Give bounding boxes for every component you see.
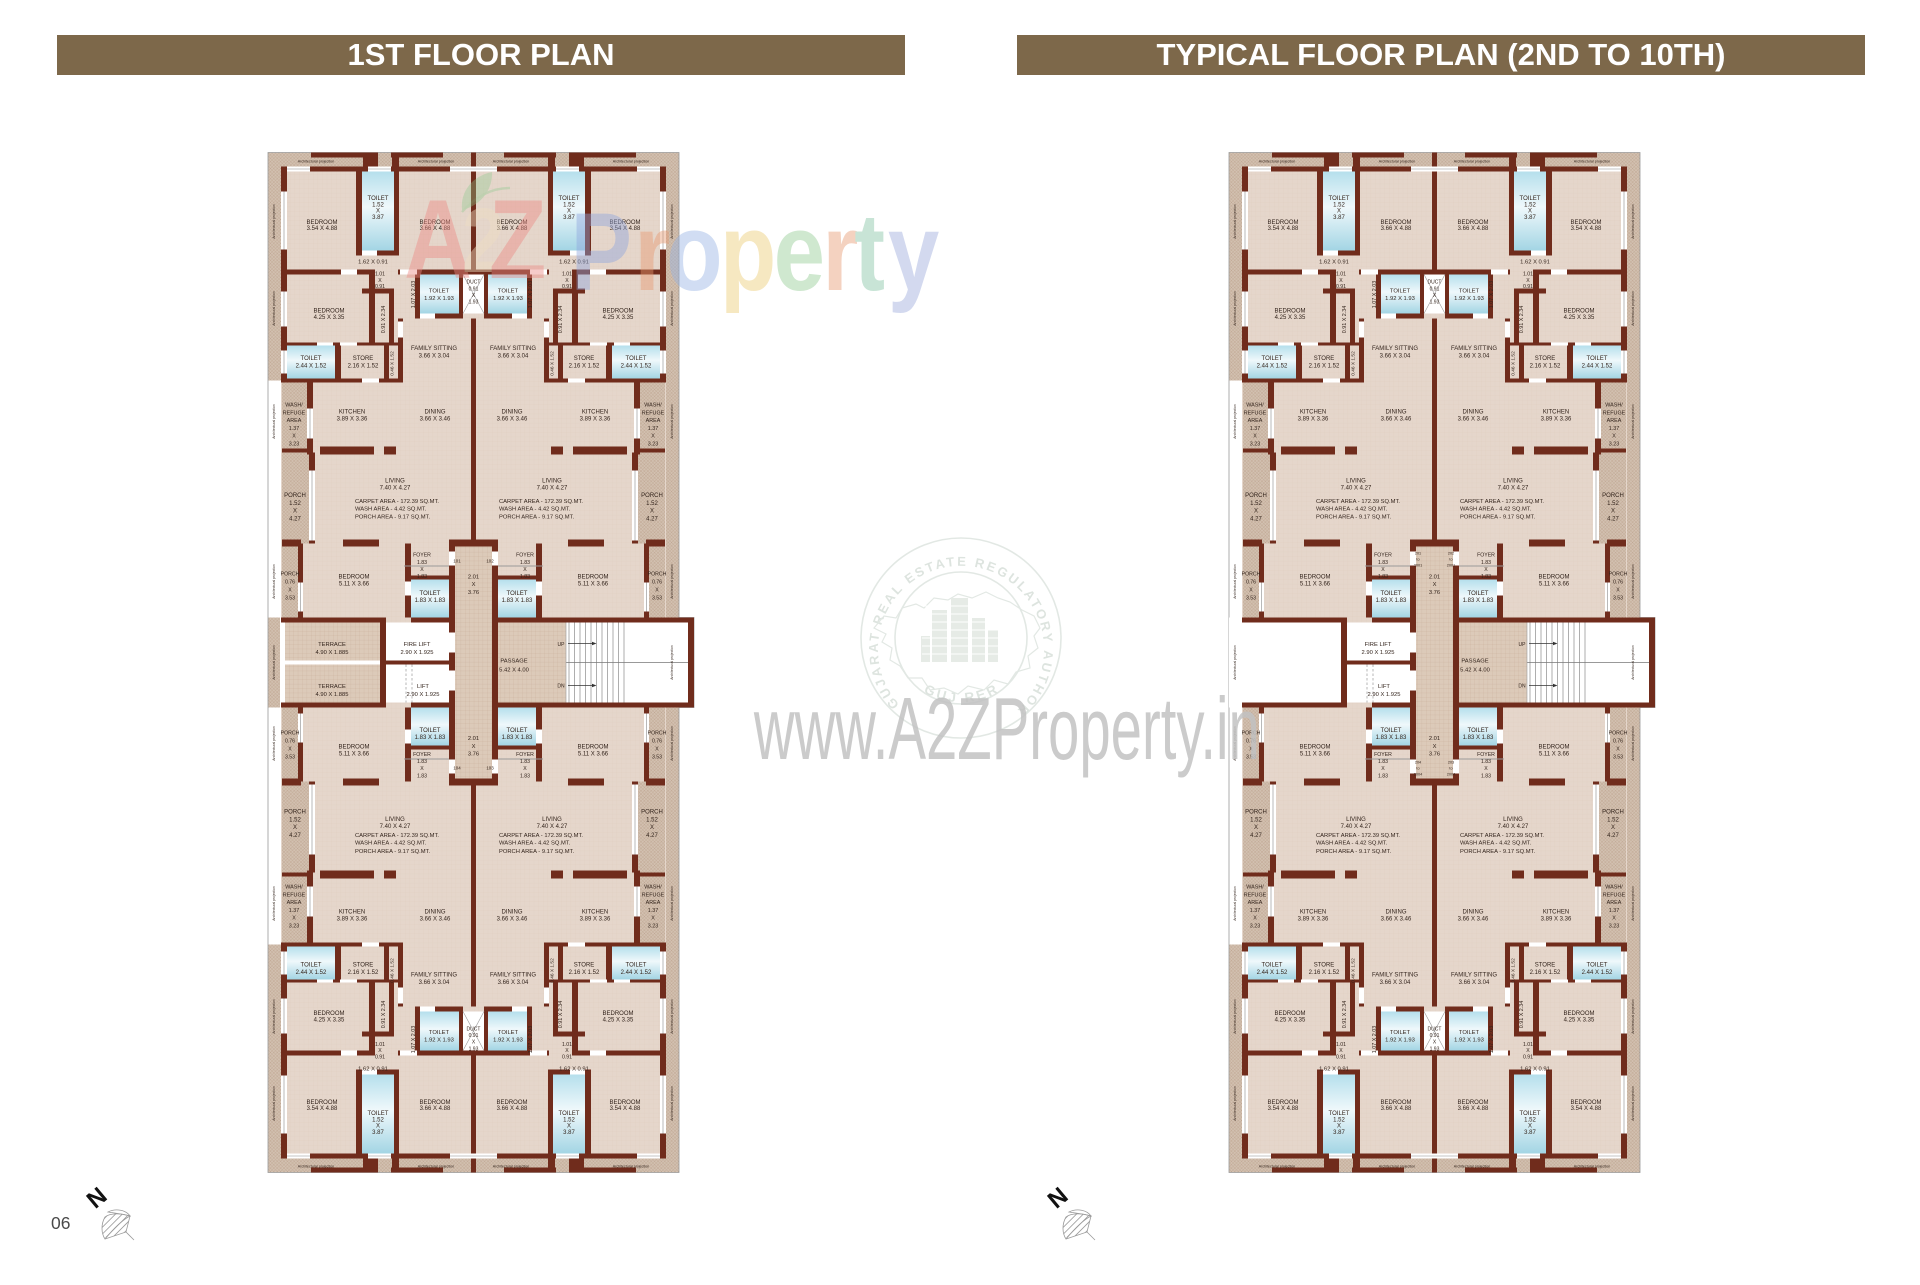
svg-text:1.37: 1.37 bbox=[648, 426, 659, 432]
svg-text:PORCH: PORCH bbox=[281, 731, 300, 737]
svg-text:3.89 X 3.36: 3.89 X 3.36 bbox=[1541, 917, 1572, 923]
svg-text:KITCHEN: KITCHEN bbox=[582, 910, 608, 916]
svg-text:7.40 X 4.27: 7.40 X 4.27 bbox=[1498, 486, 1529, 492]
svg-text:DINING: DINING bbox=[425, 910, 446, 916]
svg-text:X: X bbox=[1337, 209, 1341, 215]
svg-text:Architectural projection: Architectural projection bbox=[1631, 999, 1635, 1034]
svg-text:DUCT: DUCT bbox=[467, 1027, 481, 1033]
svg-text:1.52: 1.52 bbox=[289, 818, 301, 824]
svg-text:1.01: 1.01 bbox=[1336, 272, 1346, 278]
svg-text:0.46 X 1.52: 0.46 X 1.52 bbox=[1351, 958, 1357, 983]
svg-text:X: X bbox=[293, 825, 297, 831]
svg-text:2.16 X 1.52: 2.16 X 1.52 bbox=[348, 970, 379, 976]
svg-text:LIVING: LIVING bbox=[542, 817, 562, 823]
svg-text:X: X bbox=[292, 916, 296, 922]
svg-text:Architectural projection: Architectural projection bbox=[1454, 160, 1491, 164]
svg-text:1.07 X 2.03: 1.07 X 2.03 bbox=[528, 1026, 534, 1054]
svg-text:Architectural projection: Architectural projection bbox=[1631, 1086, 1635, 1121]
svg-text:0.46 X 1.52: 0.46 X 1.52 bbox=[1511, 958, 1517, 983]
svg-text:to: to bbox=[1416, 558, 1419, 562]
svg-text:TOILET: TOILET bbox=[420, 728, 441, 734]
svg-text:4.27: 4.27 bbox=[1250, 833, 1262, 839]
svg-text:UP: UP bbox=[1519, 642, 1527, 648]
svg-text:FOYER: FOYER bbox=[516, 553, 534, 559]
svg-text:X: X bbox=[655, 588, 659, 594]
svg-text:Architectural projection: Architectural projection bbox=[670, 404, 674, 439]
svg-text:0.46 X 1.52: 0.46 X 1.52 bbox=[1511, 351, 1517, 376]
svg-text:FOYER: FOYER bbox=[1477, 553, 1495, 559]
svg-text:Architectural projection: Architectural projection bbox=[1233, 564, 1237, 599]
svg-text:PORCH: PORCH bbox=[1609, 731, 1628, 737]
svg-text:PORCH: PORCH bbox=[648, 731, 667, 737]
svg-text:TOILET: TOILET bbox=[1390, 1030, 1411, 1036]
svg-text:KITCHEN: KITCHEN bbox=[1543, 910, 1569, 916]
svg-text:Architectural projection: Architectural projection bbox=[272, 404, 276, 439]
svg-text:TOILET: TOILET bbox=[429, 1030, 450, 1036]
svg-text:3.54 X 4.88: 3.54 X 4.88 bbox=[1571, 226, 1602, 232]
svg-text:1.83: 1.83 bbox=[417, 774, 427, 780]
svg-text:X: X bbox=[523, 766, 527, 772]
svg-text:FOYER: FOYER bbox=[516, 752, 534, 758]
svg-text:DINING: DINING bbox=[1386, 410, 1407, 416]
svg-text:to: to bbox=[1416, 767, 1419, 771]
svg-text:3.66 X 3.04: 3.66 X 3.04 bbox=[419, 980, 450, 986]
svg-text:LIVING: LIVING bbox=[1503, 479, 1523, 485]
svg-text:X: X bbox=[651, 916, 655, 922]
svg-text:1.83: 1.83 bbox=[417, 574, 427, 580]
svg-text:3.54 X 4.88: 3.54 X 4.88 bbox=[1268, 226, 1299, 232]
svg-text:1.93: 1.93 bbox=[1430, 1047, 1440, 1053]
svg-text:BEDROOM: BEDROOM bbox=[577, 575, 608, 581]
svg-text:X: X bbox=[567, 1124, 571, 1130]
svg-text:Architectural projection: Architectural projection bbox=[493, 160, 530, 164]
svg-text:X: X bbox=[378, 1048, 382, 1054]
svg-text:PORCH: PORCH bbox=[1602, 493, 1624, 499]
svg-text:3.66 X 4.88: 3.66 X 4.88 bbox=[1381, 1106, 1412, 1112]
svg-text:1.62 X 0.91: 1.62 X 0.91 bbox=[358, 1067, 388, 1073]
svg-text:0.91 X 2.34: 0.91 X 2.34 bbox=[381, 306, 387, 334]
svg-text:3.66 X 3.46: 3.66 X 3.46 bbox=[1381, 917, 1412, 923]
svg-text:STORE: STORE bbox=[353, 963, 374, 969]
svg-text:r: r bbox=[634, 190, 670, 313]
svg-text:BEDROOM: BEDROOM bbox=[496, 1100, 527, 1106]
svg-text:1.07 X 2.03: 1.07 X 2.03 bbox=[1489, 1026, 1495, 1054]
svg-text:3.53: 3.53 bbox=[285, 755, 295, 761]
svg-text:WASH AREA - 4.42 SQ.MT.: WASH AREA - 4.42 SQ.MT. bbox=[1316, 841, 1388, 847]
svg-text:2.01: 2.01 bbox=[468, 575, 479, 581]
svg-text:4.25 X 3.35: 4.25 X 3.35 bbox=[314, 1018, 345, 1024]
svg-text:BEDROOM: BEDROOM bbox=[1267, 220, 1298, 226]
svg-text:TOILET: TOILET bbox=[1587, 963, 1608, 969]
svg-text:PORCH: PORCH bbox=[1245, 810, 1267, 816]
svg-text:Architectural projection: Architectural projection bbox=[1233, 291, 1237, 326]
svg-text:REFUGE: REFUGE bbox=[1244, 410, 1267, 416]
svg-text:1.93: 1.93 bbox=[1430, 300, 1440, 306]
svg-text:1.83: 1.83 bbox=[1378, 574, 1388, 580]
svg-text:1.92 X 1.93: 1.92 X 1.93 bbox=[424, 1038, 454, 1044]
svg-text:5.11 X 3.66: 5.11 X 3.66 bbox=[1539, 752, 1570, 758]
svg-text:2.44 X 1.52: 2.44 X 1.52 bbox=[1582, 364, 1613, 370]
svg-text:4.90 X 1.885: 4.90 X 1.885 bbox=[316, 692, 349, 698]
svg-text:X: X bbox=[1337, 1124, 1341, 1130]
svg-text:REFUGE: REFUGE bbox=[1244, 892, 1267, 898]
svg-text:TOILET: TOILET bbox=[368, 1111, 389, 1117]
svg-text:REFUGE: REFUGE bbox=[642, 410, 665, 416]
svg-text:X: X bbox=[1528, 1124, 1532, 1130]
svg-text:CARPET AREA - 172.39 SQ.MT.: CARPET AREA - 172.39 SQ.MT. bbox=[355, 499, 439, 505]
svg-text:FAMILY SITTING: FAMILY SITTING bbox=[1372, 346, 1418, 352]
svg-text:KITCHEN: KITCHEN bbox=[339, 910, 365, 916]
svg-text:N: N bbox=[82, 1182, 113, 1214]
svg-text:FOYER: FOYER bbox=[1374, 553, 1392, 559]
svg-text:3.87: 3.87 bbox=[372, 215, 384, 221]
svg-text:WASH AREA - 4.42 SQ.MT.: WASH AREA - 4.42 SQ.MT. bbox=[355, 507, 427, 513]
svg-text:3.53: 3.53 bbox=[1613, 755, 1623, 761]
svg-text:Z: Z bbox=[489, 176, 546, 302]
svg-text:5.11 X 3.66: 5.11 X 3.66 bbox=[1539, 582, 1570, 588]
svg-text:3.23: 3.23 bbox=[1609, 924, 1620, 930]
svg-text:TOILET: TOILET bbox=[1520, 1111, 1541, 1117]
svg-text:2.90 X 1.925: 2.90 X 1.925 bbox=[1368, 692, 1401, 698]
svg-text:Architectural projection: Architectural projection bbox=[272, 999, 276, 1034]
svg-text:103: 103 bbox=[486, 766, 494, 771]
svg-text:1.92 X 1.93: 1.92 X 1.93 bbox=[1385, 1038, 1415, 1044]
svg-text:1.92 X 1.93: 1.92 X 1.93 bbox=[493, 1038, 523, 1044]
svg-text:2.01: 2.01 bbox=[468, 736, 479, 742]
svg-text:4.25 X 3.35: 4.25 X 3.35 bbox=[603, 1018, 634, 1024]
svg-text:PORCH: PORCH bbox=[641, 493, 663, 499]
svg-text:BEDROOM: BEDROOM bbox=[1563, 309, 1594, 315]
svg-text:1.83: 1.83 bbox=[520, 759, 530, 765]
svg-text:FAMILY SITTING: FAMILY SITTING bbox=[411, 346, 457, 352]
svg-text:1.52: 1.52 bbox=[646, 501, 658, 507]
svg-text:FIRE LIFT: FIRE LIFT bbox=[404, 642, 431, 648]
svg-text:4.27: 4.27 bbox=[1607, 517, 1619, 523]
svg-text:PORCH AREA - 9.17 SQ.MT.: PORCH AREA - 9.17 SQ.MT. bbox=[499, 849, 574, 855]
svg-text:BEDROOM: BEDROOM bbox=[1380, 220, 1411, 226]
svg-text:1.83: 1.83 bbox=[520, 574, 530, 580]
svg-text:1.37: 1.37 bbox=[1609, 908, 1620, 914]
svg-text:AREA: AREA bbox=[1248, 418, 1263, 424]
svg-text:Architectural projection: Architectural projection bbox=[1379, 1165, 1416, 1169]
svg-text:X: X bbox=[376, 209, 380, 215]
svg-text:Architectural projection: Architectural projection bbox=[1631, 564, 1635, 599]
svg-text:KITCHEN: KITCHEN bbox=[1543, 410, 1569, 416]
svg-text:Architectural projection: Architectural projection bbox=[1631, 204, 1635, 239]
svg-text:Architectural projection: Architectural projection bbox=[272, 291, 276, 326]
svg-text:1.01: 1.01 bbox=[375, 272, 385, 278]
svg-text:X: X bbox=[1253, 916, 1257, 922]
svg-text:PORCH AREA - 9.17 SQ.MT.: PORCH AREA - 9.17 SQ.MT. bbox=[499, 515, 574, 521]
svg-text:WASH AREA - 4.42 SQ.MT.: WASH AREA - 4.42 SQ.MT. bbox=[355, 841, 427, 847]
svg-text:4.25 X 3.35: 4.25 X 3.35 bbox=[1275, 1018, 1306, 1024]
svg-text:0.46 X 1.52: 0.46 X 1.52 bbox=[390, 351, 396, 376]
svg-text:2.01: 2.01 bbox=[1429, 575, 1440, 581]
svg-text:4.27: 4.27 bbox=[646, 833, 658, 839]
svg-text:202: 202 bbox=[1448, 552, 1454, 556]
svg-text:FAMILY SITTING: FAMILY SITTING bbox=[490, 346, 536, 352]
svg-text:DINING: DINING bbox=[1463, 910, 1484, 916]
svg-text:Architectural projection: Architectural projection bbox=[1631, 886, 1635, 921]
svg-text:KITCHEN: KITCHEN bbox=[1300, 410, 1326, 416]
svg-text:TOILET: TOILET bbox=[1390, 289, 1411, 295]
svg-text:AREA: AREA bbox=[1607, 900, 1622, 906]
svg-text:Architectural projection: Architectural projection bbox=[1233, 204, 1237, 239]
svg-text:3.66 X 3.04: 3.66 X 3.04 bbox=[419, 354, 450, 360]
svg-text:DINING: DINING bbox=[425, 410, 446, 416]
svg-text:WASH AREA - 4.42 SQ.MT.: WASH AREA - 4.42 SQ.MT. bbox=[1316, 507, 1388, 513]
svg-text:3.23: 3.23 bbox=[648, 924, 659, 930]
svg-text:0.91 X 2.34: 0.91 X 2.34 bbox=[1342, 306, 1348, 334]
svg-text:FAMILY SITTING: FAMILY SITTING bbox=[490, 973, 536, 979]
svg-text:BEDROOM: BEDROOM bbox=[313, 1011, 344, 1017]
svg-text:5.11 X 3.66: 5.11 X 3.66 bbox=[1300, 752, 1331, 758]
svg-text:1.62 X 0.91: 1.62 X 0.91 bbox=[1520, 1067, 1550, 1073]
svg-text:0.91 X 2.34: 0.91 X 2.34 bbox=[1519, 1001, 1525, 1029]
svg-text:X: X bbox=[1611, 509, 1615, 515]
svg-text:FOYER: FOYER bbox=[1374, 752, 1392, 758]
svg-text:3.53: 3.53 bbox=[652, 755, 662, 761]
svg-text:2.01: 2.01 bbox=[1429, 736, 1440, 742]
svg-text:3.87: 3.87 bbox=[1333, 1130, 1345, 1136]
svg-text:Architectural projection: Architectural projection bbox=[1379, 160, 1416, 164]
svg-text:0.91 X 2.34: 0.91 X 2.34 bbox=[1342, 1001, 1348, 1029]
svg-text:FAMILY SITTING: FAMILY SITTING bbox=[1451, 973, 1497, 979]
svg-text:3.66 X 3.04: 3.66 X 3.04 bbox=[1459, 980, 1490, 986]
svg-text:3.66 X 3.46: 3.66 X 3.46 bbox=[1381, 417, 1412, 423]
svg-text:BEDROOM: BEDROOM bbox=[1267, 1100, 1298, 1106]
svg-text:X: X bbox=[288, 747, 292, 753]
svg-text:2.44 X 1.52: 2.44 X 1.52 bbox=[1257, 364, 1288, 370]
svg-text:WASH/: WASH/ bbox=[285, 885, 303, 891]
svg-text:203: 203 bbox=[1448, 761, 1454, 765]
svg-text:Architectural projection: Architectural projection bbox=[1574, 160, 1611, 164]
svg-text:0.91: 0.91 bbox=[469, 1033, 479, 1039]
svg-text:WASH/: WASH/ bbox=[644, 403, 662, 409]
svg-text:BEDROOM: BEDROOM bbox=[306, 220, 337, 226]
svg-text:7.40 X 4.27: 7.40 X 4.27 bbox=[1498, 824, 1529, 830]
svg-text:0.91: 0.91 bbox=[1523, 284, 1533, 290]
svg-text:LIVING: LIVING bbox=[385, 817, 405, 823]
svg-text:X: X bbox=[655, 747, 659, 753]
svg-text:1.37: 1.37 bbox=[1250, 908, 1261, 914]
svg-text:X: X bbox=[1381, 567, 1385, 573]
svg-text:DINING: DINING bbox=[502, 410, 523, 416]
svg-text:AREA: AREA bbox=[1248, 900, 1263, 906]
svg-text:TOILET: TOILET bbox=[1381, 591, 1402, 597]
svg-text:3.66 X 3.46: 3.66 X 3.46 bbox=[420, 917, 451, 923]
svg-text:Architectural projection: Architectural projection bbox=[272, 564, 276, 599]
svg-text:DINING: DINING bbox=[1386, 910, 1407, 916]
svg-text:4.27: 4.27 bbox=[646, 517, 658, 523]
svg-text:X: X bbox=[650, 509, 654, 515]
svg-text:DUCT: DUCT bbox=[1428, 1027, 1442, 1033]
svg-text:UP: UP bbox=[558, 642, 566, 648]
svg-text:to: to bbox=[1449, 767, 1452, 771]
svg-text:X: X bbox=[1484, 766, 1488, 772]
svg-text:www.A2ZProperty.in: www.A2ZProperty.in bbox=[753, 679, 1260, 778]
svg-text:1.07 X 2.03: 1.07 X 2.03 bbox=[1372, 1026, 1378, 1054]
svg-text:LIFT: LIFT bbox=[1378, 684, 1390, 690]
svg-text:AREA: AREA bbox=[287, 900, 302, 906]
svg-text:FAMILY SITTING: FAMILY SITTING bbox=[1372, 973, 1418, 979]
svg-text:X: X bbox=[1616, 588, 1620, 594]
svg-text:0.76: 0.76 bbox=[285, 580, 295, 586]
svg-text:Architectural projection: Architectural projection bbox=[1631, 726, 1635, 761]
svg-text:1ST FLOOR PLAN: 1ST FLOOR PLAN bbox=[348, 37, 615, 72]
svg-text:2.44 X 1.52: 2.44 X 1.52 bbox=[621, 970, 652, 976]
svg-text:3.66 X 4.88: 3.66 X 4.88 bbox=[1458, 226, 1489, 232]
svg-text:204: 204 bbox=[1415, 761, 1421, 765]
svg-text:WASH AREA - 4.42 SQ.MT.: WASH AREA - 4.42 SQ.MT. bbox=[499, 841, 571, 847]
svg-text:4.25 X 3.35: 4.25 X 3.35 bbox=[603, 315, 634, 321]
svg-text:FOYER: FOYER bbox=[1477, 752, 1495, 758]
svg-text:3.66 X 4.88: 3.66 X 4.88 bbox=[497, 1106, 528, 1112]
svg-text:TOILET: TOILET bbox=[1468, 591, 1489, 597]
svg-text:PORCH: PORCH bbox=[1609, 572, 1628, 578]
svg-text:Architectural projection: Architectural projection bbox=[613, 160, 650, 164]
svg-text:e: e bbox=[774, 190, 825, 313]
svg-text:1.37: 1.37 bbox=[289, 426, 300, 432]
svg-text:TOILET: TOILET bbox=[301, 963, 322, 969]
svg-text:5.11 X 3.66: 5.11 X 3.66 bbox=[578, 582, 609, 588]
svg-text:LIVING: LIVING bbox=[1346, 479, 1366, 485]
svg-text:BEDROOM: BEDROOM bbox=[1538, 575, 1569, 581]
svg-text:REFUGE: REFUGE bbox=[283, 410, 306, 416]
svg-text:2.16 X 1.52: 2.16 X 1.52 bbox=[569, 364, 600, 370]
svg-text:1.37: 1.37 bbox=[1609, 426, 1620, 432]
svg-text:CARPET AREA - 172.39 SQ.MT.: CARPET AREA - 172.39 SQ.MT. bbox=[1460, 499, 1544, 505]
svg-text:1.37: 1.37 bbox=[289, 908, 300, 914]
svg-text:1.83 X 1.83: 1.83 X 1.83 bbox=[502, 598, 533, 604]
svg-text:1.83: 1.83 bbox=[1378, 560, 1388, 566]
svg-text:4.27: 4.27 bbox=[289, 517, 301, 523]
svg-text:BEDROOM: BEDROOM bbox=[338, 745, 369, 751]
svg-text:1.83 X 1.83: 1.83 X 1.83 bbox=[1463, 735, 1494, 741]
svg-text:CARPET AREA - 172.39 SQ.MT.: CARPET AREA - 172.39 SQ.MT. bbox=[499, 833, 583, 839]
svg-text:CARPET AREA - 172.39 SQ.MT.: CARPET AREA - 172.39 SQ.MT. bbox=[499, 499, 583, 505]
svg-text:3.66 X 4.88: 3.66 X 4.88 bbox=[1458, 1106, 1489, 1112]
svg-text:06: 06 bbox=[51, 1213, 70, 1233]
svg-text:REFUGE: REFUGE bbox=[1603, 892, 1626, 898]
svg-text:TOILET: TOILET bbox=[1381, 728, 1402, 734]
svg-text:0.91 X 2.34: 0.91 X 2.34 bbox=[558, 306, 564, 334]
svg-text:3.89 X 3.36: 3.89 X 3.36 bbox=[1541, 417, 1572, 423]
svg-text:Architectural projection: Architectural projection bbox=[1454, 1165, 1491, 1169]
svg-text:X: X bbox=[1616, 747, 1620, 753]
svg-text:TOILET: TOILET bbox=[498, 1030, 519, 1036]
svg-text:CARPET AREA - 172.39 SQ.MT.: CARPET AREA - 172.39 SQ.MT. bbox=[1460, 833, 1544, 839]
svg-text:1.62 X 0.91: 1.62 X 0.91 bbox=[559, 1067, 589, 1073]
svg-text:LIVING: LIVING bbox=[542, 479, 562, 485]
svg-text:Architectural projection: Architectural projection bbox=[670, 1086, 674, 1121]
svg-text:Architectural projection: Architectural projection bbox=[298, 160, 335, 164]
svg-text:1.07 X 2.03: 1.07 X 2.03 bbox=[411, 1026, 417, 1054]
svg-text:2.16 X 1.52: 2.16 X 1.52 bbox=[1309, 364, 1340, 370]
svg-text:P: P bbox=[570, 190, 632, 313]
svg-text:X: X bbox=[1433, 744, 1437, 750]
svg-text:1.92 X 1.93: 1.92 X 1.93 bbox=[1385, 296, 1415, 302]
svg-text:X: X bbox=[1254, 825, 1258, 831]
svg-text:1.83 X 1.83: 1.83 X 1.83 bbox=[502, 735, 533, 741]
svg-text:3.87: 3.87 bbox=[372, 1130, 384, 1136]
svg-text:LIVING: LIVING bbox=[1503, 817, 1523, 823]
svg-text:r: r bbox=[822, 190, 858, 313]
svg-text:1.83 X 1.83: 1.83 X 1.83 bbox=[1376, 598, 1407, 604]
svg-text:3.89 X 3.36: 3.89 X 3.36 bbox=[580, 917, 611, 923]
svg-text:to: to bbox=[1449, 558, 1452, 562]
svg-text:AREA: AREA bbox=[287, 418, 302, 424]
svg-text:TERRACE: TERRACE bbox=[318, 684, 346, 690]
svg-text:X: X bbox=[288, 588, 292, 594]
svg-text:2.16 X 1.52: 2.16 X 1.52 bbox=[1530, 364, 1561, 370]
svg-text:Architectural projection: Architectural projection bbox=[1259, 160, 1296, 164]
svg-text:FOYER: FOYER bbox=[413, 553, 431, 559]
svg-text:3.76: 3.76 bbox=[1429, 752, 1440, 758]
svg-text:PORCH: PORCH bbox=[1242, 572, 1261, 578]
svg-text:7.40 X 4.27: 7.40 X 4.27 bbox=[537, 486, 568, 492]
svg-text:Architectural projection: Architectural projection bbox=[1631, 291, 1635, 326]
svg-text:0.76: 0.76 bbox=[1613, 580, 1623, 586]
svg-text:5.42 X 4.00: 5.42 X 4.00 bbox=[499, 668, 529, 674]
svg-text:X: X bbox=[1339, 1048, 1343, 1054]
svg-text:PORCH: PORCH bbox=[284, 810, 306, 816]
svg-text:4.27: 4.27 bbox=[1607, 833, 1619, 839]
svg-text:Architectural projection: Architectural projection bbox=[298, 1165, 335, 1169]
svg-text:PORCH: PORCH bbox=[641, 810, 663, 816]
svg-text:3.89 X 3.36: 3.89 X 3.36 bbox=[580, 417, 611, 423]
svg-text:WASH/: WASH/ bbox=[285, 403, 303, 409]
svg-text:X: X bbox=[293, 509, 297, 515]
svg-text:BEDROOM: BEDROOM bbox=[1274, 309, 1305, 315]
svg-text:TOILET: TOILET bbox=[1262, 963, 1283, 969]
svg-text:BEDROOM: BEDROOM bbox=[1570, 1100, 1601, 1106]
svg-text:REFUGE: REFUGE bbox=[1603, 410, 1626, 416]
svg-text:AREA: AREA bbox=[646, 900, 661, 906]
svg-text:3.23: 3.23 bbox=[289, 924, 300, 930]
svg-text:Architectural projection: Architectural projection bbox=[272, 886, 276, 921]
svg-text:2001: 2001 bbox=[1447, 564, 1455, 568]
svg-text:0.91: 0.91 bbox=[375, 284, 385, 290]
svg-text:X: X bbox=[1612, 434, 1616, 440]
svg-text:2.44 X 1.52: 2.44 X 1.52 bbox=[296, 364, 327, 370]
svg-text:PORCH: PORCH bbox=[1245, 493, 1267, 499]
svg-text:DN: DN bbox=[1518, 684, 1526, 690]
svg-text:2.44 X 1.52: 2.44 X 1.52 bbox=[621, 364, 652, 370]
svg-text:0.91: 0.91 bbox=[1430, 1033, 1440, 1039]
svg-text:DINING: DINING bbox=[1463, 410, 1484, 416]
svg-text:0.46 X 1.52: 0.46 X 1.52 bbox=[550, 351, 556, 376]
svg-text:X: X bbox=[565, 1048, 569, 1054]
svg-text:TOILET: TOILET bbox=[626, 963, 647, 969]
svg-text:1.52: 1.52 bbox=[1607, 818, 1619, 824]
svg-text:X: X bbox=[523, 567, 527, 573]
svg-text:3.76: 3.76 bbox=[468, 590, 479, 596]
svg-text:201: 201 bbox=[1415, 552, 1421, 556]
svg-text:3.89 X 3.36: 3.89 X 3.36 bbox=[1298, 917, 1329, 923]
svg-text:0.91: 0.91 bbox=[1430, 287, 1440, 293]
svg-text:3.23: 3.23 bbox=[1609, 442, 1620, 448]
svg-text:PORCH AREA - 9.17 SQ.MT.: PORCH AREA - 9.17 SQ.MT. bbox=[1460, 849, 1535, 855]
svg-text:BEDROOM: BEDROOM bbox=[338, 575, 369, 581]
svg-text:Architectural projection: Architectural projection bbox=[1574, 1165, 1611, 1169]
svg-text:X: X bbox=[1433, 582, 1437, 588]
svg-text:2.44 X 1.52: 2.44 X 1.52 bbox=[296, 970, 327, 976]
svg-text:CARPET AREA - 172.39 SQ.MT.: CARPET AREA - 172.39 SQ.MT. bbox=[1316, 499, 1400, 505]
svg-text:REFUGE: REFUGE bbox=[283, 892, 306, 898]
svg-text:Architectural projection: Architectural projection bbox=[1631, 404, 1635, 439]
svg-text:4.25 X 3.35: 4.25 X 3.35 bbox=[314, 315, 345, 321]
